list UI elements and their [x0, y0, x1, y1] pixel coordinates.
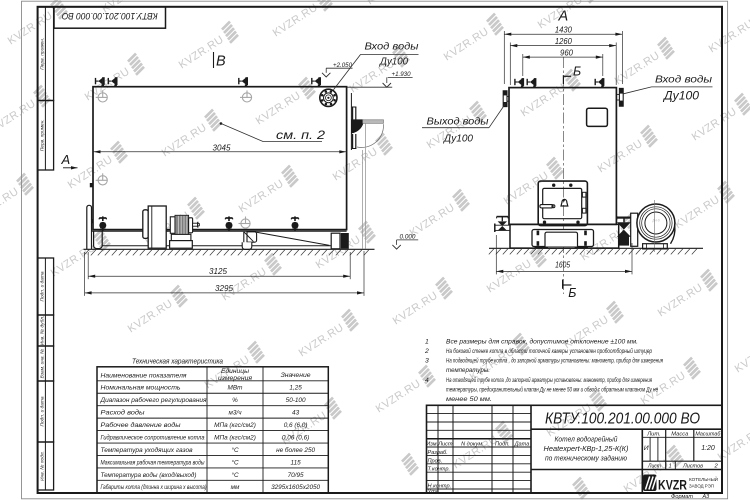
svg-text:ЗАВОД РЭП: ЗАВОД РЭП	[689, 484, 714, 489]
svg-text:Расход воды: Расход воды	[101, 409, 145, 417]
svg-text:°С: °С	[231, 446, 239, 454]
svg-text:Наименование показателя: Наименование показателя	[101, 373, 188, 380]
svg-text:3: 3	[425, 358, 429, 365]
svg-text:Масса: Масса	[671, 432, 689, 438]
svg-text:Подп.: Подп.	[495, 441, 510, 447]
svg-text:Лит.: Лит.	[646, 432, 661, 438]
svg-text:На боковой стенке котла в обла: На боковой стенке котла в области топочн…	[446, 347, 652, 355]
svg-text:3125: 3125	[209, 266, 227, 276]
svg-text:м3/ч: м3/ч	[228, 410, 242, 417]
svg-text:В: В	[216, 54, 226, 70]
svg-text:3295: 3295	[215, 283, 233, 293]
svg-text:Инв. № подл.: Инв. № подл.	[39, 451, 45, 481]
svg-text:Гидравлическое сопротивление к: Гидравлическое сопротивление котла	[101, 433, 205, 441]
svg-text:Подп. и дата: Подп. и дата	[39, 271, 45, 301]
svg-text:по техническому заданию: по техническому заданию	[545, 454, 628, 462]
svg-text:Разраб.: Разраб.	[428, 450, 448, 456]
svg-text:Утв.: Утв.	[427, 489, 441, 495]
svg-text:Лист: Лист	[437, 441, 453, 447]
svg-text:А: А	[61, 152, 71, 167]
svg-text:°С: °С	[231, 458, 239, 466]
svg-text:Диапазон рабочего регулировани: Диапазон рабочего регулирования	[99, 396, 207, 404]
svg-text:температуры, предохранительный: температуры, предохранительный клапан Ду…	[446, 386, 658, 394]
svg-text:Значение: Значение	[281, 372, 311, 379]
svg-text:70/95: 70/95	[288, 472, 304, 479]
svg-text:И: И	[644, 445, 649, 452]
svg-text:3045: 3045	[213, 143, 231, 153]
svg-text:+1.930: +1.930	[392, 71, 411, 78]
svg-text:%: %	[232, 397, 238, 404]
svg-text:Ду100: Ду100	[379, 55, 408, 67]
svg-text:МПа (кгс/см2): МПа (кгс/см2)	[214, 422, 256, 429]
svg-text:Габариты котла (длинна х ширин: Габариты котла (длинна х ширина х высота…	[101, 483, 207, 491]
svg-text:измерения: измерения	[218, 375, 253, 382]
svg-text:Формат: Формат	[671, 494, 694, 500]
svg-text:МВт: МВт	[228, 385, 244, 392]
svg-text:4: 4	[425, 377, 429, 384]
svg-text:115: 115	[291, 459, 302, 466]
svg-text:0,6 (6,0): 0,6 (6,0)	[284, 422, 308, 429]
svg-text:Ду100: Ду100	[443, 133, 473, 145]
svg-text:1,25: 1,25	[289, 385, 302, 392]
svg-text:Подп. и дата: Подп. и дата	[39, 396, 45, 426]
svg-text:1260: 1260	[555, 37, 572, 46]
svg-text:Изм.: Изм.	[426, 441, 438, 447]
svg-text:не более 250: не более 250	[276, 446, 315, 454]
svg-text:N докум.: N докум.	[461, 441, 484, 447]
svg-text:°С: °С	[231, 471, 239, 479]
svg-text:43: 43	[292, 410, 300, 417]
svg-text:1430: 1430	[555, 26, 572, 35]
svg-text:Инв. № дубл.: Инв. № дубл.	[39, 316, 45, 346]
svg-text:Вход воды: Вход воды	[365, 41, 419, 53]
svg-text:0.000: 0.000	[400, 233, 416, 240]
svg-text:КВТУ.100.201.00.000 ВО: КВТУ.100.201.00.000 ВО	[61, 10, 158, 21]
svg-text:менее 50 мм.: менее 50 мм.	[446, 396, 492, 403]
svg-text:На подводящей трубе котла ,: На подводящей трубе котла , до запорной …	[446, 357, 663, 365]
svg-text:50-100: 50-100	[286, 397, 306, 404]
svg-text:ДН-9: ДН-9	[652, 219, 660, 223]
svg-text:+2.050: +2.050	[333, 62, 352, 69]
svg-text:Котел водогрейный: Котел водогрейный	[555, 435, 618, 443]
svg-text:На отводящей трубе котла ,до з: На отводящей трубе котла ,до запорной ар…	[446, 376, 652, 384]
svg-text:1605: 1605	[555, 261, 570, 270]
svg-text:Масштаб: Масштаб	[695, 432, 721, 438]
svg-text:А3: А3	[702, 494, 710, 500]
svg-text:Температура уходящих газов: Температура уходящих газов	[101, 446, 194, 454]
svg-text:Лист: Лист	[647, 463, 661, 469]
svg-text:КВТУ.100.201.00.000 ВО: КВТУ.100.201.00.000 ВО	[545, 410, 700, 427]
svg-text:Перв. примен.: Перв. примен.	[39, 38, 45, 70]
svg-text:Рабочее давление воды: Рабочее давление воды	[101, 421, 181, 429]
svg-text:KVZR: KVZR	[658, 478, 687, 493]
svg-text:Листов: Листов	[682, 463, 703, 469]
svg-text:Дата: Дата	[514, 441, 530, 447]
svg-text:Взам. инв. №: Взам. инв. №	[39, 349, 45, 379]
svg-text:Т.контр.: Т.контр.	[428, 467, 451, 473]
svg-text:1: 1	[669, 463, 672, 469]
svg-text:Все размеры для справок, допус: Все размеры для справок, допустимое откл…	[446, 338, 638, 346]
svg-text:Вход воды: Вход воды	[655, 73, 712, 85]
svg-text:Техническая характеристика: Техническая характеристика	[132, 357, 223, 366]
svg-text:0,06 (0,6): 0,06 (0,6)	[282, 434, 309, 441]
svg-text:Температура воды (вход/выход): Температура воды (вход/выход)	[101, 471, 197, 479]
svg-text:Б: Б	[568, 286, 576, 300]
svg-text:см. п. 2: см. п. 2	[276, 128, 325, 142]
svg-text:1: 1	[425, 339, 429, 346]
svg-text:температуры.: температуры.	[446, 367, 490, 374]
svg-text:Heatexpert-КВр-1,25-К(К): Heatexpert-КВр-1,25-К(К)	[544, 446, 629, 453]
svg-text:Номинальная мощность: Номинальная мощность	[101, 385, 181, 392]
svg-text:А: А	[558, 9, 569, 25]
svg-text:Ду100: Ду100	[662, 90, 700, 102]
svg-text:КОТЕЛЬНЫЙ: КОТЕЛЬНЫЙ	[689, 475, 718, 482]
svg-text:2: 2	[424, 348, 429, 355]
svg-text:мм: мм	[231, 484, 240, 491]
svg-text:Максимальная рабочая температу: Максимальная рабочая температура воды	[101, 458, 205, 466]
svg-text:Перв. примен.: Перв. примен.	[39, 119, 45, 151]
svg-text:Б: Б	[573, 65, 581, 79]
svg-text:960: 960	[560, 49, 573, 58]
svg-text:1:20: 1:20	[701, 445, 715, 452]
svg-text:Выход воды: Выход воды	[427, 115, 489, 127]
svg-text:Пров.: Пров.	[428, 458, 443, 464]
svg-text:МПа (кгс/см2): МПа (кгс/см2)	[214, 434, 256, 441]
svg-text:3295х1605х2050: 3295х1605х2050	[271, 484, 320, 491]
